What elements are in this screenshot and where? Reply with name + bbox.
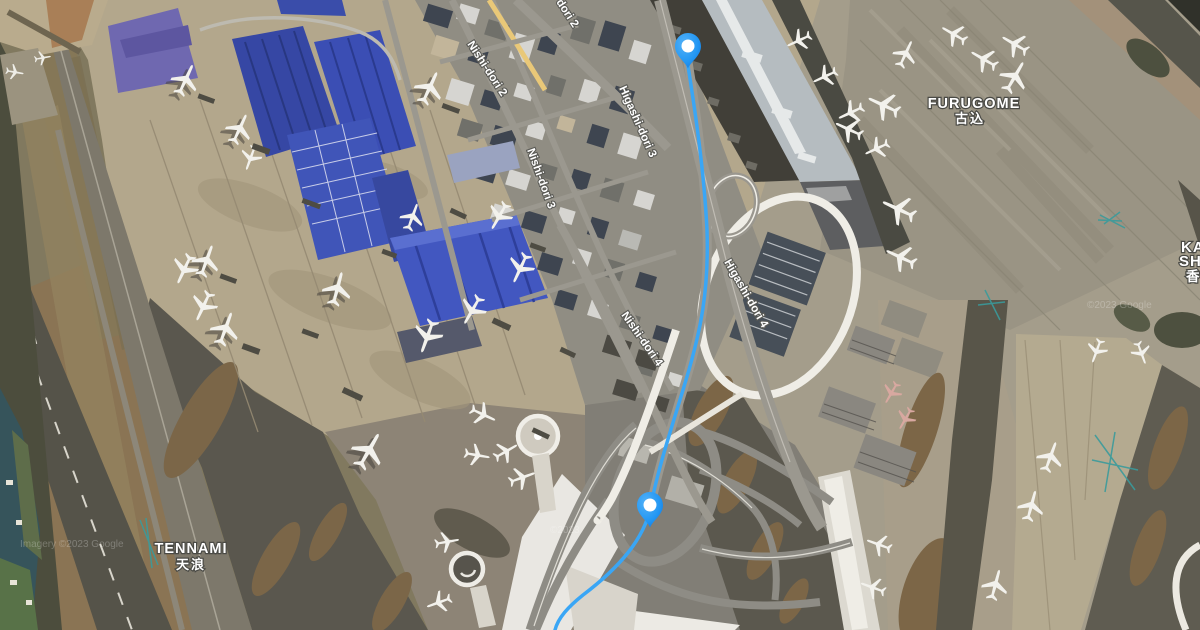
svg-text:TENNAMI: TENNAMI <box>154 541 227 557</box>
svg-text:FURUGOME: FURUGOME <box>928 96 1021 112</box>
svg-text:©2023: ©2023 <box>550 525 580 536</box>
svg-text:©2023 Google: ©2023 Google <box>1087 300 1152 311</box>
svg-text:古込: 古込 <box>955 111 985 126</box>
svg-text:Imagery ©2023 Google: Imagery ©2023 Google <box>20 539 124 550</box>
svg-text:天浪: 天浪 <box>176 557 206 572</box>
svg-text:SH: SH <box>1179 253 1200 270</box>
svg-text:香: 香 <box>1185 268 1200 284</box>
